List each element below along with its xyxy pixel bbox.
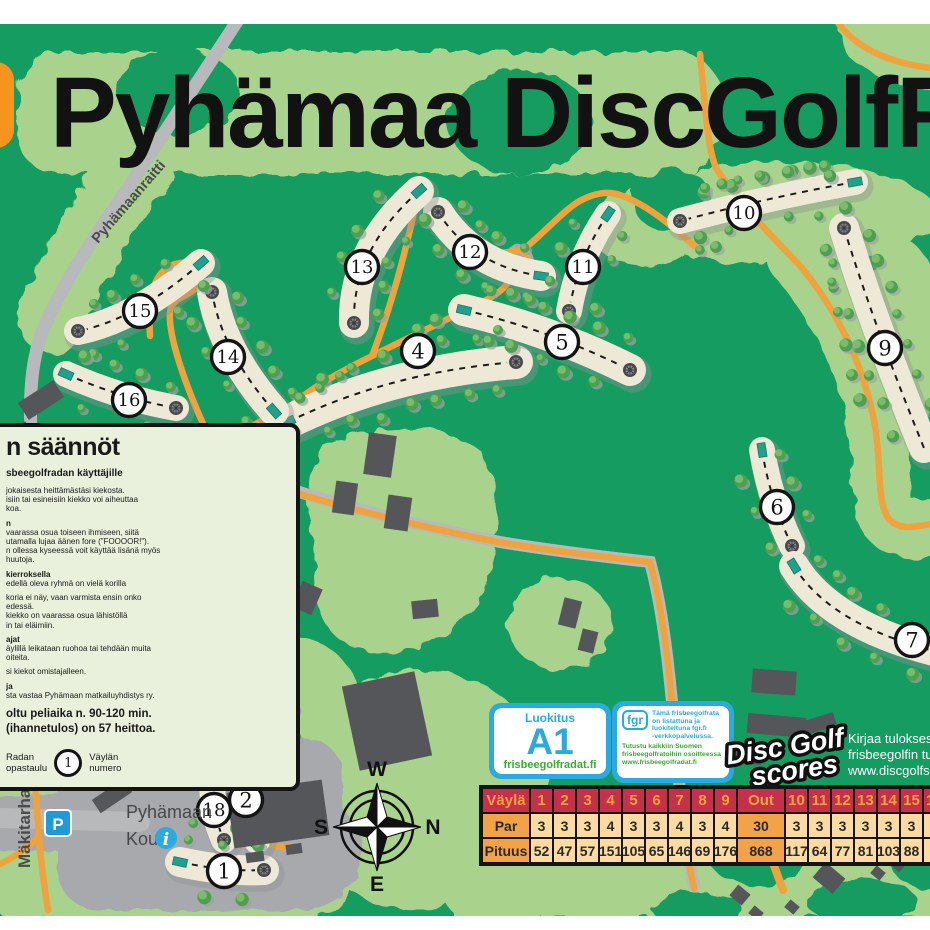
fgr-text-top: Tämä frisbeegolfrata on listattuna ja lu…	[652, 710, 719, 740]
scores-promo-text: Kirjaa tuloksesi v frisbeegolfin tulo ww…	[848, 731, 930, 779]
scorecard-cell: 3	[576, 813, 599, 838]
basket-icon	[835, 219, 853, 237]
rules-body: jokaisesta heittämästäsi kiekosta.isiin …	[6, 486, 294, 700]
scorecard-cell: 4	[668, 813, 691, 838]
scorecard-cell: 3	[900, 813, 923, 838]
scorecard-cell: 4	[599, 813, 622, 838]
scorecard-cell: 77	[831, 838, 854, 863]
scorecard-cell: 5	[622, 788, 645, 813]
svg-text:15: 15	[129, 301, 152, 322]
svg-text:13: 13	[351, 257, 374, 278]
svg-text:9: 9	[878, 337, 891, 361]
rules-line: koa.	[6, 504, 294, 513]
rules-line: huutoja.	[6, 555, 294, 564]
luokitus-value: A1	[526, 724, 573, 760]
scorecard-cell: 14	[877, 788, 900, 813]
hole-4-badge: 4	[402, 335, 435, 368]
scorecard-cell: 3	[553, 813, 576, 838]
hole-6-badge: 6	[761, 491, 794, 524]
hole-16-badge: 16	[113, 384, 146, 417]
rules-legend: Radanopastaulu 1 Väylännumero	[6, 749, 294, 777]
scorecard-cell: 4	[599, 788, 622, 813]
scorecard-cell: Out	[737, 788, 785, 813]
scorecard-cell: 3	[923, 813, 930, 838]
scorecard-cell: 12	[831, 788, 854, 813]
rules-line: edellä oleva ryhmä on vielä korilla	[6, 579, 294, 588]
rules-summary-2: (ihannetulos) on 57 heittoa.	[6, 722, 294, 737]
scorecard-cell: 88	[900, 838, 923, 863]
discgolf-scores-logo: Disc Golf scores	[722, 712, 854, 796]
hole-10-badge: 10	[728, 197, 761, 230]
rules-line: äylillä leikataan ruohoa tai tehdään mui…	[6, 644, 294, 653]
scorecard-cell: 6	[645, 788, 668, 813]
hole-6-tee-pad	[757, 442, 767, 457]
rules-line: utamalla lujaa äänen fore ("FOOOOR!").	[6, 537, 294, 546]
basket-icon	[255, 861, 273, 879]
scorecard-cell: 2	[553, 788, 576, 813]
basket-icon	[507, 353, 525, 371]
hole-5-badge: 5	[546, 326, 579, 359]
luokitus-badge: Luokitus A1 frisbeegolfradat.fi	[489, 703, 611, 779]
scorecard-cell: 3	[530, 813, 553, 838]
legend-hole-badge: 1	[54, 749, 82, 777]
svg-text:16: 16	[118, 390, 141, 411]
rules-line: jokaisesta heittämästäsi kiekosta.	[6, 486, 294, 495]
scorecard-cell: 52	[530, 838, 553, 863]
fgr-badge: fgr Tämä frisbeegolfrata on listattuna j…	[612, 701, 734, 783]
svg-text:14: 14	[217, 347, 240, 368]
disc-golf-map-canvas: 12345679101112131415161718 Pyhämaanraitt…	[0, 0, 930, 930]
scorecard-cell: 8	[923, 838, 930, 863]
scorecard-table: Väylä123456789Out10111213141516Par333433…	[479, 785, 930, 866]
scorecard-cell: 146	[668, 838, 691, 863]
rules-panel: n säännöt sbeegolfradan käyttäjille joka…	[0, 423, 300, 791]
hole-7-badge: 7	[896, 624, 929, 657]
scorecard-cell: Par	[482, 813, 530, 838]
scorecard-row-par: Par333433434303333333	[482, 813, 930, 838]
scorecard-cell: 69	[691, 838, 714, 863]
luokitus-site: frisbeegolfradat.fi	[504, 760, 597, 771]
scorecard-cell: 3	[877, 813, 900, 838]
scorecard-cell: 105	[622, 838, 645, 863]
hole-13-badge: 13	[346, 251, 379, 284]
svg-text:5: 5	[555, 331, 568, 355]
scorecard-cell: 1	[530, 788, 553, 813]
fgr-text-bottom: Tutustu kaikkiin Suomen frisbeegolfratoi…	[622, 743, 724, 766]
scorecard-cell: 8	[691, 788, 714, 813]
scorecard-cell: 30	[737, 813, 785, 838]
rules-line: sta vastaa Pyhämaan matkailuyhdistys ry.	[6, 691, 294, 700]
legend-board: Radanopastaulu	[6, 752, 47, 774]
scorecard-cell: 3	[831, 813, 854, 838]
compass-north: N	[425, 816, 440, 839]
school-label-line1: Pyhämaan	[126, 802, 212, 822]
svg-text:2: 2	[239, 789, 252, 813]
rules-subtitle: sbeegolfradan käyttäjille	[6, 468, 294, 479]
legend-hole-number: Väylännumero	[89, 752, 121, 774]
rules-line: in tai eläimiin.	[6, 621, 294, 630]
page-margin-top	[0, 0, 930, 24]
hole-9-badge: 9	[869, 332, 902, 365]
scorecard-cell: Väylä	[482, 788, 530, 813]
scorecard-cell: 3	[645, 813, 668, 838]
rules-line: kierroksella	[6, 570, 294, 579]
fgr-bubble-icon: fgr	[622, 710, 648, 730]
scorecard-cell: 3	[576, 788, 599, 813]
basket-icon	[345, 314, 363, 332]
scorecard-cell: 176	[714, 838, 737, 863]
compass-east: E	[370, 873, 384, 896]
rules-line: isiin tai esineisiin kiekko voi aiheutta…	[6, 495, 294, 504]
scorecard-cell: Pituus	[482, 838, 530, 863]
rules-line: vaarassa osua toiseen ihmiseen, siitä	[6, 528, 294, 537]
svg-text:10: 10	[733, 203, 756, 224]
rules-line: n ollessa kyseessä voit käyttää lisänä m…	[6, 546, 294, 555]
scorecard-cell: 65	[645, 838, 668, 863]
compass-south: S	[314, 816, 328, 839]
rules-line: ja	[6, 682, 294, 691]
scorecard-cell: 117	[785, 838, 808, 863]
basket-icon	[167, 399, 185, 417]
scorecard-cell: 57	[576, 838, 599, 863]
hole-12-badge: 12	[454, 236, 487, 269]
svg-text:6: 6	[770, 496, 783, 520]
scorecard-cell: 3	[785, 813, 808, 838]
rules-line: ajat	[6, 635, 294, 644]
hole-14-badge: 14	[212, 341, 245, 374]
scorecard-row-vayla: Väylä123456789Out10111213141516	[482, 788, 930, 813]
scorecard-cell: 868	[737, 838, 785, 863]
rules-title: n säännöt	[6, 433, 294, 462]
scorecard-cell: 3	[622, 813, 645, 838]
scorecard-cell: 16	[923, 788, 930, 813]
rules-line: edessä.	[6, 602, 294, 611]
rules-line: n	[6, 519, 294, 528]
hole-11-badge: 11	[567, 251, 600, 284]
svg-text:4: 4	[411, 340, 424, 364]
svg-text:11: 11	[572, 257, 595, 278]
scorecard-cell: 13	[854, 788, 877, 813]
scorecard-cell: 103	[877, 838, 900, 863]
scorecard-cell: 11	[808, 788, 831, 813]
basket-icon	[671, 212, 689, 230]
scorecard-cell: 151	[599, 838, 622, 863]
scorecard-cell: 7	[668, 788, 691, 813]
hole-1-badge: 1	[208, 855, 241, 888]
scorecard-cell: 64	[808, 838, 831, 863]
logo-fragment	[0, 62, 14, 148]
scorecard-cell: 81	[854, 838, 877, 863]
scorecard-row-pituus: Pituus5247571511056514669176868117647781…	[482, 838, 930, 863]
parking-sign: P	[45, 810, 71, 836]
svg-text:7: 7	[905, 629, 918, 653]
hole-15-badge: 15	[124, 295, 157, 328]
parking-letter: P	[52, 815, 63, 834]
scorecard-cell: 4	[714, 813, 737, 838]
rules-summary-1: oltu peliaika n. 90-120 min.	[6, 707, 294, 722]
scorecard-cell: 47	[553, 838, 576, 863]
basket-icon	[69, 322, 87, 340]
rules-line: kiekko on vaarassa osua lähistöllä	[6, 611, 294, 620]
page-margin-bottom	[0, 916, 930, 930]
scorecard-cell: 9	[714, 788, 737, 813]
svg-text:12: 12	[459, 242, 482, 263]
rules-line: si kiekot omistajalleen.	[6, 667, 294, 676]
scorecard-cell: 3	[854, 813, 877, 838]
scorecard-cell: 10	[785, 788, 808, 813]
page-title: Pyhämaa DiscGolfPark	[50, 56, 930, 171]
svg-text:1: 1	[217, 860, 230, 884]
rules-line: oiteita.	[6, 653, 294, 662]
rules-line: koria ei näy, vaan varmista ensin onko	[6, 593, 294, 602]
compass-west: W	[367, 758, 387, 781]
scorecard-cell: 3	[691, 813, 714, 838]
basket-icon	[621, 361, 639, 379]
scorecard-cell: 15	[900, 788, 923, 813]
scorecard-cell: 3	[808, 813, 831, 838]
info-letter: i	[163, 830, 169, 850]
